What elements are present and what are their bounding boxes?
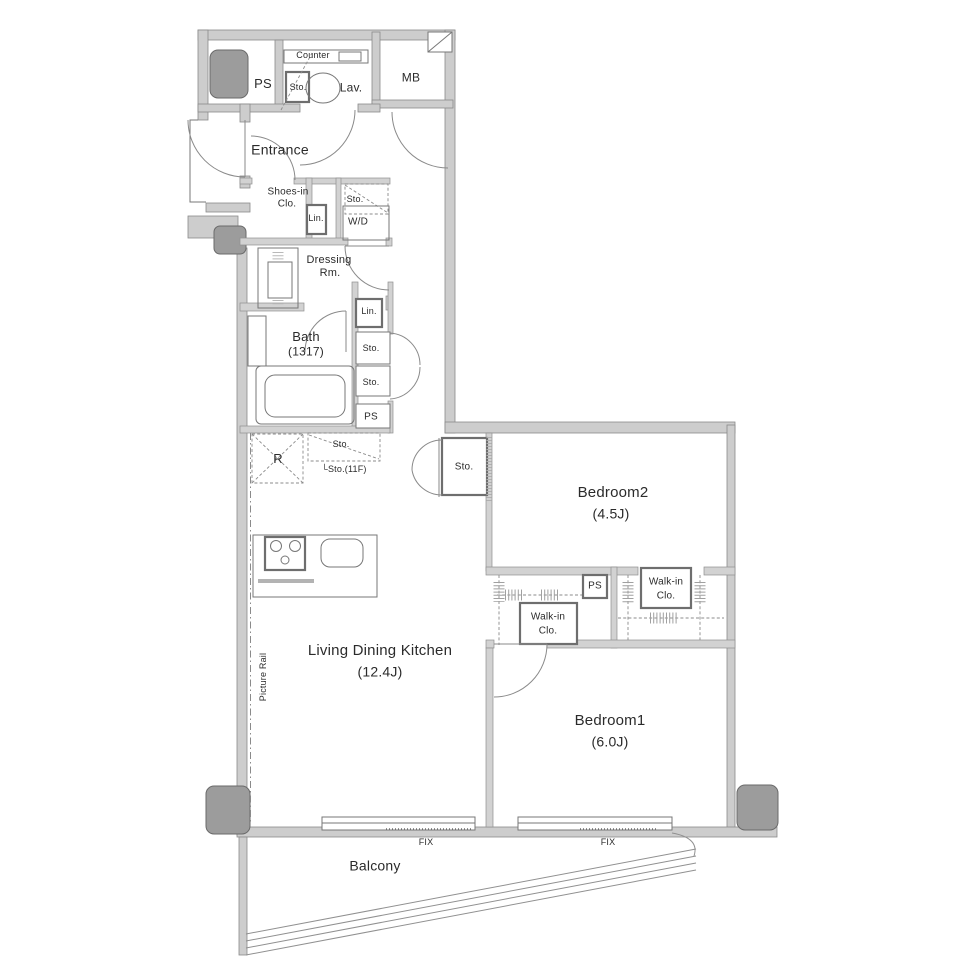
label-bedroom1: Bedroom1 bbox=[575, 713, 646, 730]
label-dressing-line2: Rm. bbox=[320, 267, 341, 279]
label-mb: MB bbox=[402, 71, 420, 84]
label-sto-lav: Sto. bbox=[290, 83, 307, 93]
label-ps-top: PS bbox=[254, 77, 272, 91]
balcony-rail-1 bbox=[246, 849, 696, 934]
label-bedroom1-size: (6.0J) bbox=[592, 734, 629, 749]
sto-doors-arc-lower bbox=[390, 367, 420, 399]
floorplan-drawing bbox=[0, 0, 960, 960]
label-fix-right: FIX bbox=[601, 838, 616, 848]
bedroom1-door-arc bbox=[494, 644, 547, 697]
label-lin-entrance: Lin. bbox=[308, 214, 323, 224]
pillar-bottom-left bbox=[206, 786, 250, 834]
label-lav: Lav. bbox=[340, 81, 363, 94]
balcony-rail-4 bbox=[246, 870, 696, 955]
counter-bar bbox=[258, 579, 314, 583]
sink-icon bbox=[321, 539, 363, 567]
bathtub-inner bbox=[265, 375, 345, 417]
counter-sink-box bbox=[339, 52, 361, 61]
walkin-left-label-box bbox=[520, 603, 577, 644]
label-sto-lower: Sto. bbox=[363, 378, 380, 388]
hall-sto-closet bbox=[412, 437, 489, 503]
label-picture-rail: Picture Rail bbox=[259, 653, 269, 701]
bedroom1-door bbox=[494, 644, 547, 697]
label-lin-bath: Lin. bbox=[361, 307, 376, 317]
label-wd: W/D bbox=[348, 217, 368, 228]
label-fridge: R bbox=[273, 452, 283, 466]
label-ldk: Living Dining Kitchen bbox=[308, 643, 452, 660]
label-fix-left: FIX bbox=[419, 838, 434, 848]
label-bedroom2: Bedroom2 bbox=[578, 485, 649, 502]
toilet-icon bbox=[306, 73, 340, 103]
label-sto-wd: Sto. bbox=[347, 195, 364, 205]
label-walkin-right-line1: Walk-in bbox=[649, 577, 683, 588]
pillar-top-left bbox=[210, 50, 248, 98]
label-bath: Bath bbox=[292, 330, 320, 344]
sto-doors-arc-upper bbox=[390, 333, 420, 365]
bath-counter bbox=[248, 316, 266, 366]
walkin-right-label-box bbox=[641, 568, 691, 608]
windows-balcony bbox=[246, 817, 696, 955]
entrance-detail bbox=[188, 110, 448, 202]
label-walkin-left-line2: Clo. bbox=[539, 626, 558, 637]
label-walkin-left-line1: Walk-in bbox=[531, 612, 565, 623]
balcony-rail-2 bbox=[246, 856, 696, 941]
label-sto-upper: Sto. bbox=[363, 344, 380, 354]
label-balcony: Balcony bbox=[349, 858, 400, 873]
label-entrance: Entrance bbox=[251, 142, 309, 157]
balcony-rail-3 bbox=[246, 863, 696, 948]
lavatory-fixtures bbox=[281, 32, 452, 110]
label-sto-hall: Sto. bbox=[455, 462, 474, 473]
entry-step-outline bbox=[190, 120, 206, 202]
walkin-closets bbox=[497, 568, 724, 645]
interior-walls bbox=[240, 178, 735, 827]
label-shoes-line1: Shoes-in bbox=[267, 187, 308, 198]
label-dressing-line1: Dressing bbox=[306, 254, 351, 266]
entry-storage bbox=[307, 184, 389, 240]
label-counter: Counter bbox=[296, 51, 329, 61]
dressing-door-arc bbox=[345, 246, 389, 290]
kitchen-fixtures bbox=[251, 433, 381, 822]
pillar-bottom-right bbox=[737, 785, 778, 830]
label-ldk-size: (12.4J) bbox=[358, 664, 403, 679]
label-walkin-right-line2: Clo. bbox=[657, 591, 676, 602]
label-sto-shelf: Sto. bbox=[333, 440, 350, 450]
label-ps-mid: PS bbox=[364, 412, 378, 423]
label-sto-shelf-11f: └Sto.(11F) bbox=[321, 465, 366, 475]
label-ps-closet: PS bbox=[588, 581, 602, 592]
entrance-door-arc bbox=[188, 120, 245, 177]
hall-door-arc bbox=[392, 112, 448, 168]
label-bath-size: (1317) bbox=[288, 345, 324, 358]
vanity-inner bbox=[268, 262, 292, 298]
floorplan: PS Counter Sto. Lav. MB Entrance Shoes-i… bbox=[0, 0, 960, 960]
label-bedroom2-size: (4.5J) bbox=[593, 506, 630, 521]
label-shoes-line2: Clo. bbox=[278, 199, 297, 210]
